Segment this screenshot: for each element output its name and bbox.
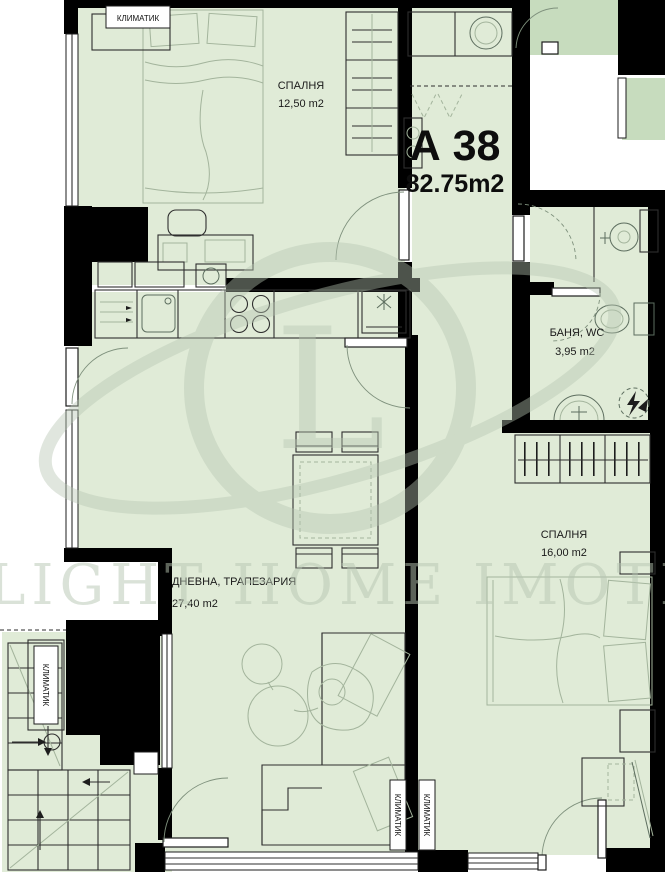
bedroom1-name: СПАЛНЯ bbox=[278, 80, 325, 92]
floor-plan: КЛИМАТИК bbox=[0, 0, 665, 872]
balcony-door-leaf-living bbox=[163, 838, 228, 847]
bedroom2-name: СПАЛНЯ bbox=[541, 529, 588, 541]
watermark-letter: L bbox=[274, 292, 386, 488]
ac-label-bedroom1: КЛИМАТИК bbox=[117, 14, 160, 23]
door-frame-stop bbox=[538, 855, 546, 870]
floor-plan-drawing: КЛИМАТИК bbox=[0, 0, 665, 872]
bedroom2-floor bbox=[418, 428, 652, 855]
ac-label-stairs: КЛИМАТИК bbox=[41, 664, 50, 707]
watermark-text: LIGHT HOME IMOTI bbox=[0, 553, 665, 618]
bathroom-name: БАНЯ, WC bbox=[550, 327, 605, 339]
balcony-door-leaf-bedroom2 bbox=[598, 800, 606, 858]
apartment-area: 82.75m2 bbox=[406, 170, 505, 198]
bathroom-east-wall bbox=[648, 190, 665, 430]
bedroom1-area: 12,50 m2 bbox=[278, 98, 324, 110]
bathroom-south-wall bbox=[502, 420, 665, 433]
hall-lobby-door-leaf bbox=[513, 216, 524, 261]
window-living-south bbox=[165, 852, 418, 870]
corridor-door-frame bbox=[618, 78, 626, 138]
appliance-on-wall bbox=[134, 752, 158, 774]
corridor-door-leaf bbox=[542, 42, 558, 54]
bedroom1-door-leaf bbox=[399, 190, 409, 260]
ac-label-living: КЛИМАТИК bbox=[393, 794, 402, 837]
corridor-floor-2 bbox=[622, 78, 665, 140]
shaft-block bbox=[618, 0, 665, 75]
bathroom-north-wall bbox=[522, 190, 665, 207]
bathroom-inner-wall bbox=[530, 282, 554, 295]
ac-label-bedroom2: КЛИМАТИК bbox=[422, 794, 431, 837]
hall-east-wall bbox=[512, 0, 530, 215]
apartment-number: А 38 bbox=[410, 122, 501, 170]
shaft-wall bbox=[92, 207, 148, 262]
window-bedroom2-south bbox=[468, 853, 538, 869]
